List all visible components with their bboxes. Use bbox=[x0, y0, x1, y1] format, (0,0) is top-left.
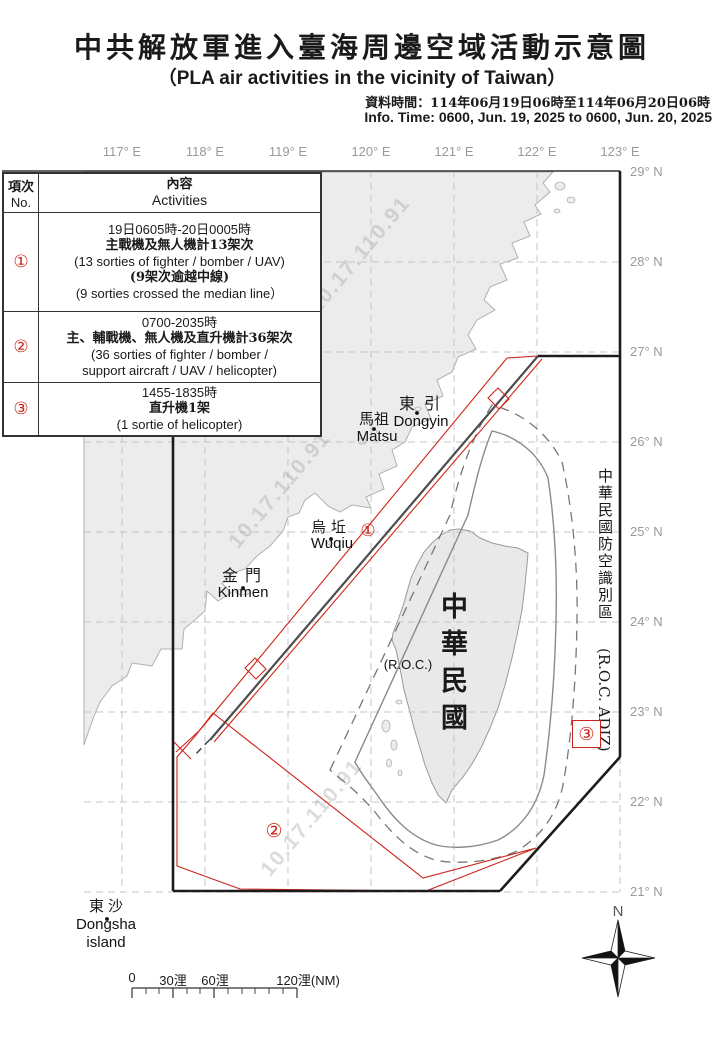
lat-label: 21° N bbox=[630, 884, 663, 899]
col-no-en: No. bbox=[11, 195, 31, 210]
wuqiu-label-zh: 烏坵 bbox=[311, 516, 351, 537]
row-number: ③ bbox=[4, 383, 39, 435]
dongsha-label-zh: 東沙 bbox=[89, 895, 127, 916]
row-number: ① bbox=[4, 213, 39, 311]
compass-north-label: N bbox=[613, 903, 624, 920]
col-header-no: 項次 No. bbox=[4, 174, 39, 212]
taiwan-roc-name-label: 中華民國 bbox=[432, 592, 471, 752]
activity-line: 主戰機及無人機計13架次 bbox=[105, 238, 253, 254]
scale-label-120: 120浬(NM) bbox=[276, 970, 340, 989]
table-row: ② 0700-2035時 主、輔戰機、無人機及直升機計36架次 (36 sort… bbox=[4, 312, 320, 383]
lon-label: 122° E bbox=[517, 144, 556, 159]
page-title: 中共解放軍進入臺海周邊空域活動示意圖 bbox=[74, 26, 650, 66]
kinmen-label-zh: 金門 bbox=[222, 562, 268, 586]
page-subtitle: （PLA air activities in the vicinity of T… bbox=[158, 63, 567, 90]
adiz-label-zh: 中華民國防空識別區 bbox=[595, 468, 616, 648]
activity-line: 1455-1835時 bbox=[142, 385, 217, 401]
row-activities: 19日0605時-20日0005時 主戰機及無人機計13架次 (13 sorti… bbox=[39, 213, 320, 311]
activity-line: (13 sorties of fighter / bomber / UAV) bbox=[74, 254, 285, 270]
table-row: ① 19日0605時-20日0005時 主戰機及無人機計13架次 (13 sor… bbox=[4, 213, 320, 312]
activity-marker-2: ② bbox=[265, 820, 282, 843]
kinmen-label-en: Kinmen bbox=[218, 584, 269, 601]
row-activities: 1455-1835時 直升機1架 (1 sortie of helicopter… bbox=[39, 383, 320, 435]
matsu-label-en: Matsu bbox=[357, 428, 398, 445]
lon-label: 118° E bbox=[186, 144, 224, 159]
compass-rose-icon bbox=[582, 920, 655, 997]
activity-line: support aircraft / UAV / helicopter) bbox=[82, 363, 277, 379]
col-header-activities: 內容 Activities bbox=[39, 174, 320, 212]
dongyin-label-zh: 東引 bbox=[399, 390, 449, 414]
activity-marker-3: ③ bbox=[572, 720, 601, 748]
activity-marker-1: ① bbox=[360, 521, 375, 541]
table-header-row: 項次 No. 內容 Activities bbox=[4, 174, 320, 213]
activity-marker-3-num: ③ bbox=[578, 724, 594, 745]
lon-label: 120° E bbox=[351, 144, 390, 159]
lat-label: 22° N bbox=[630, 794, 663, 809]
activity-line: 直升機1架 bbox=[149, 401, 210, 417]
scale-label-60: 60浬 bbox=[201, 970, 228, 989]
lat-label: 29° N bbox=[630, 164, 663, 179]
activity-line: (9 sorties crossed the median line） bbox=[76, 286, 283, 302]
col-act-en: Activities bbox=[152, 192, 207, 209]
lat-label: 26° N bbox=[630, 434, 663, 449]
activity-line: (1 sortie of helicopter) bbox=[117, 417, 243, 433]
info-time-en: Info. Time: 0600, Jun. 19, 2025 to 0600,… bbox=[364, 109, 712, 125]
lon-label: 117° E bbox=[103, 144, 141, 159]
dongsha-label-en: Dongsha bbox=[76, 916, 136, 933]
lat-label: 25° N bbox=[630, 524, 663, 539]
activity-line: 0700-2035時 bbox=[142, 315, 217, 331]
activities-table: 項次 No. 內容 Activities ① 19日0605時-20日0005時… bbox=[2, 172, 322, 437]
scale-label-0: 0 bbox=[128, 970, 135, 985]
dongyin-label-en: Dongyin bbox=[393, 413, 448, 430]
activity-line: 主、輔戰機、無人機及直升機計36架次 bbox=[66, 331, 292, 347]
roc-abbrev-label: (R.O.C.) bbox=[384, 657, 432, 672]
scale-bar bbox=[132, 988, 297, 998]
scale-label-30: 30浬 bbox=[159, 970, 186, 989]
lat-label: 23° N bbox=[630, 704, 663, 719]
activity-line: (36 sorties of fighter / bomber / bbox=[91, 347, 268, 363]
col-no-zh: 項次 bbox=[8, 176, 34, 195]
lon-label: 119° E bbox=[269, 144, 307, 159]
dongsha-island-label-en: island bbox=[86, 934, 125, 951]
row-number: ② bbox=[4, 312, 39, 382]
lon-label: 123° E bbox=[600, 144, 639, 159]
lon-label: 121° E bbox=[434, 144, 473, 159]
lat-label: 28° N bbox=[630, 254, 663, 269]
lat-label: 27° N bbox=[630, 344, 663, 359]
matsu-label-zh: 馬祖 bbox=[359, 408, 389, 429]
pla-activity-map-page: 中共解放軍進入臺海周邊空域活動示意圖 （PLA air activities i… bbox=[0, 0, 720, 1040]
activity-line: (9架次逾越中線) bbox=[130, 270, 229, 286]
activity-line: 19日0605時-20日0005時 bbox=[108, 222, 251, 238]
wuqiu-label-en: Wuqiu bbox=[311, 535, 353, 552]
row-activities: 0700-2035時 主、輔戰機、無人機及直升機計36架次 (36 sortie… bbox=[39, 312, 320, 382]
lat-label: 24° N bbox=[630, 614, 663, 629]
table-row: ③ 1455-1835時 直升機1架 (1 sortie of helicopt… bbox=[4, 383, 320, 435]
col-act-zh: 內容 bbox=[166, 177, 192, 193]
